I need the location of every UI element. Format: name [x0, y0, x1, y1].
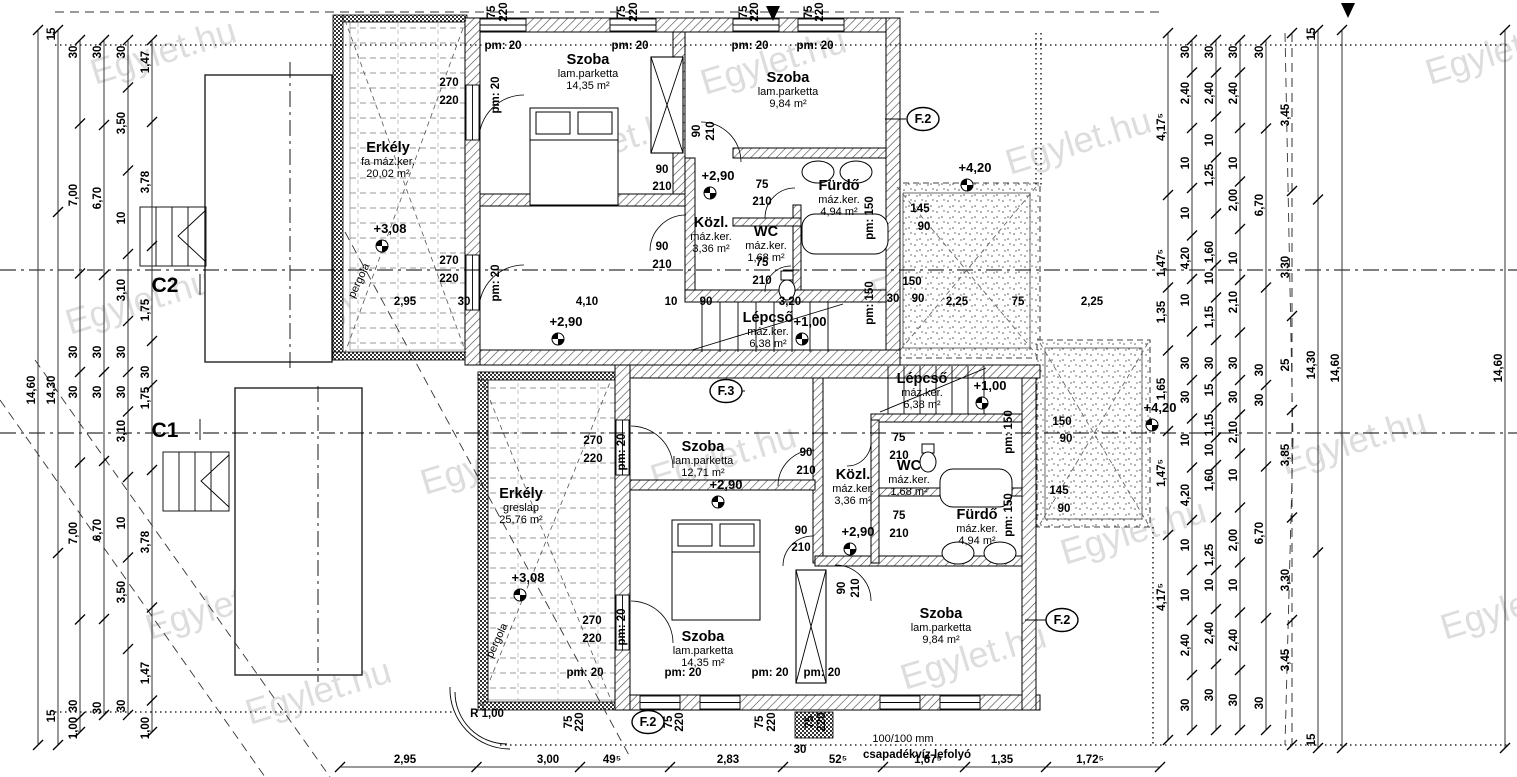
dim-value: 1,35 [991, 754, 1014, 766]
dim-value: 210 [705, 121, 717, 140]
dim-value: 7,00 [68, 522, 80, 544]
dim-value: 10 [1180, 589, 1192, 602]
node-marker-label: F.3 [718, 384, 735, 398]
wall [1022, 378, 1036, 710]
dim-value: 10 [1228, 579, 1240, 592]
dim-value: 75 [804, 715, 816, 728]
level-value: +3,08 [374, 221, 407, 236]
dim-value: 10 [116, 212, 128, 225]
furniture [678, 524, 712, 546]
level-value: +2,90 [550, 314, 583, 329]
dim-value: 30 [1180, 699, 1192, 712]
dim-value: 6,70 [92, 519, 104, 541]
dim-value: 75 [893, 510, 906, 522]
dim-value: 220 [498, 2, 510, 21]
dim-value: 15 [1204, 383, 1216, 396]
room-name: Szoba [767, 70, 811, 86]
node-marker-label: F.2 [1054, 613, 1071, 627]
door-swing [631, 601, 673, 643]
dim-value: 30 [1254, 46, 1266, 59]
dim-value: 3,50 [116, 581, 128, 603]
dim-value: 4,17⁵ [1156, 113, 1168, 141]
dim-value: 1,72⁵ [1076, 754, 1104, 766]
node-marker-label: F.2 [915, 112, 932, 126]
dim-value: 52⁵ [829, 754, 847, 766]
dim-value: 1,00 [68, 717, 80, 739]
dwall [478, 372, 488, 710]
dim-value: 220 [582, 633, 601, 645]
dim-value: 30 [1228, 357, 1240, 370]
floor-plan-page: Egylet.huEgylet.huEgylet.huEgylet.huEgyl… [0, 0, 1517, 777]
dim-value: 2,95 [394, 754, 417, 766]
room-area: 14,35 m² [681, 657, 725, 669]
dim-value: 90 [1058, 503, 1071, 515]
dim-value: 14,60 [1493, 354, 1505, 383]
dim-value: 15 [46, 27, 58, 40]
dim-value: 49⁵ [603, 754, 621, 766]
dim-value: 75 [754, 715, 766, 728]
dim-value: 75 [1012, 296, 1025, 308]
room-name: Erkély [499, 486, 543, 502]
level-value: +4,20 [1144, 400, 1177, 415]
dim-value: 10 [1180, 207, 1192, 220]
dim-value: pm: 20 [490, 76, 502, 113]
arrow-marker [1341, 3, 1355, 18]
level-value: +2,90 [842, 524, 875, 539]
dwall [333, 15, 343, 360]
dim-value: 15 [1306, 27, 1318, 40]
watermark: Egylet.hu [1420, 10, 1517, 93]
dim-value: 2,95 [394, 296, 417, 308]
room-area: 4,94 m² [958, 535, 996, 547]
dim-value: 90 [691, 125, 703, 138]
dim-value: 75 [486, 5, 498, 18]
room-finish: lam.parketta [673, 455, 734, 467]
room-area: 6,38 m² [903, 399, 941, 411]
room-area: 9,84 m² [769, 98, 807, 110]
dim-value: 30 [68, 46, 80, 59]
dim-value: 30 [116, 46, 128, 59]
dim-value: 10 [1204, 134, 1216, 147]
room-area: 20,02 m² [366, 168, 410, 180]
dim-value: 210 [889, 528, 908, 540]
dim-value: 3,78 [140, 170, 152, 193]
dim-value: 30 [92, 346, 104, 359]
dim-value: 10 [1228, 157, 1240, 170]
room-name: Közl. [836, 467, 871, 483]
dim-value: 220 [749, 2, 761, 21]
dim-value: 30 [1180, 46, 1192, 59]
dim-value: 4,17⁵ [1156, 583, 1168, 611]
dim-value: 3,20 [779, 296, 801, 308]
dim-value: 90 [836, 582, 848, 595]
dim-value: 2,40 [1228, 82, 1240, 104]
dim-value: 220 [766, 712, 778, 731]
dim-value: 30 [1228, 391, 1240, 404]
room-finish: lam.parketta [673, 645, 734, 657]
dim-value: pm: 150 [1003, 410, 1015, 453]
dim-value: 10 [1204, 272, 1216, 285]
dim-value: 1,35 [1156, 300, 1168, 323]
section-marker: C2 [152, 274, 179, 297]
furniture [781, 271, 793, 280]
dim-value: 220 [816, 712, 828, 731]
dim-value: 3,10 [116, 420, 128, 442]
dwall [478, 372, 615, 380]
room-area: 25,76 m² [499, 514, 543, 526]
level-value: +2,90 [710, 477, 743, 492]
section-marker: C1 [152, 419, 179, 442]
furniture [578, 112, 612, 134]
level-value: +3,08 [512, 570, 545, 585]
dim-value: 30 [1254, 394, 1266, 407]
dim-value: pm: 20 [484, 40, 521, 52]
watermark: Egylet.hu [1000, 100, 1156, 183]
dim-value: 3,85 [1280, 443, 1292, 466]
dim-value: 90 [1060, 433, 1073, 445]
dim-value: 2,00 [1228, 189, 1240, 211]
dim-value: 10 [1228, 252, 1240, 265]
dim-value: 4,20 [1180, 247, 1192, 269]
dwall [343, 15, 467, 22]
room-name: Szoba [920, 606, 964, 622]
dim-value: 2,25 [946, 296, 969, 308]
room-area: 3,36 m² [834, 495, 872, 507]
dim-value: 2,25 [1081, 296, 1104, 308]
dim-value: 30 [1204, 46, 1216, 59]
dim-value: 2,00 [1228, 529, 1240, 551]
wall [465, 18, 480, 365]
dim-value: 3,78 [140, 530, 152, 553]
dim-value: 90 [912, 293, 925, 305]
room-area: 4,94 m² [820, 206, 858, 218]
room-finish: lam.parketta [758, 86, 819, 98]
neighbor-building [235, 388, 362, 675]
room-name: Erkély [366, 140, 410, 156]
room-finish: lam.parketta [558, 68, 619, 80]
dim-value: 90 [795, 525, 808, 537]
dim-value: 6,70 [1254, 194, 1266, 216]
dim-value: 1,15 [1204, 413, 1216, 436]
dim-value: 220 [814, 2, 826, 21]
room-finish: máz.ker. [747, 326, 789, 338]
door-swing [847, 442, 871, 466]
dim-value: 145 [1049, 485, 1069, 497]
neighbor-building [205, 75, 332, 362]
dim-value: 1,75 [140, 298, 152, 321]
room-finish: máz.ker. [818, 194, 860, 206]
dim-value: 2,40 [1204, 622, 1216, 644]
dim-value: pm: 150 [1003, 493, 1015, 536]
dim-value: pm: 20 [803, 667, 840, 679]
dim-value: 1,47⁵ [1156, 249, 1168, 277]
dim-value: 90 [918, 221, 931, 233]
room-name: Fürdő [956, 507, 997, 523]
dim-value: 2,40 [1180, 82, 1192, 104]
watermark: Egylet.hu [1275, 400, 1431, 483]
thin [163, 452, 229, 511]
plan-path [201, 455, 229, 507]
dim-value: 15 [46, 709, 58, 722]
dim-value: 1,65 [1156, 377, 1168, 400]
dim-value: 30 [1180, 357, 1192, 370]
dim-value: pm: 20 [490, 264, 502, 301]
dim-value: 75 [616, 5, 628, 18]
dim-value: 30 [116, 346, 128, 359]
dim-value: 270 [582, 615, 601, 627]
dim-value: 220 [574, 712, 586, 731]
dwall [333, 352, 467, 360]
dim-value: 10 [1204, 579, 1216, 592]
room-finish: máz.ker. [956, 523, 998, 535]
dim-value: 3,30 [1280, 569, 1292, 591]
watermark: Egylet.hu [60, 260, 216, 343]
room-name: WC [754, 224, 779, 240]
dim-value: 1,47 [140, 662, 152, 684]
dim-value: 3,00 [537, 754, 559, 766]
dim-value: 10 [1180, 539, 1192, 552]
dim-value: 14,30 [1306, 351, 1318, 380]
dim-value: 14,60 [1330, 354, 1342, 383]
dim-value: 14,60 [26, 376, 38, 405]
floor-plan-canvas: Egylet.huEgylet.huEgylet.huEgylet.huEgyl… [0, 0, 1517, 777]
dim-value: 30 [1228, 694, 1240, 707]
dim-value: 30 [887, 293, 900, 305]
dim-value: pm: 150 [864, 196, 876, 239]
dim-value: 30 [68, 386, 80, 399]
dim-value: 2,40 [1228, 629, 1240, 651]
dim-value: 210 [850, 578, 862, 597]
dim-value: 6,70 [1254, 522, 1266, 544]
room-finish: greslap [503, 502, 539, 514]
room-area: 1,68 m² [747, 252, 785, 264]
dim-value: 10 [1228, 469, 1240, 482]
dim-value: pm: 20 [751, 667, 788, 679]
dim-value: 220 [628, 2, 640, 21]
room-name: Lépcső [743, 310, 794, 326]
dim-value: 2,40 [1180, 634, 1192, 656]
dim-value: 7,00 [68, 184, 80, 206]
dim-value: 4,20 [1180, 484, 1192, 506]
dim-value: 1,60 [1204, 241, 1216, 263]
dim-value: pm: 20 [616, 433, 628, 470]
room-finish: fa máz.ker. [361, 156, 415, 168]
dim-value: 3,50 [116, 112, 128, 134]
dim-value: 75 [893, 432, 906, 444]
dim-value: 1,47 [140, 51, 152, 73]
dim-value: 3,10 [116, 279, 128, 301]
plan-path [178, 210, 206, 262]
level-value: +4,20 [959, 160, 992, 175]
dim-value: pm: 150 [864, 281, 876, 324]
wall [733, 148, 886, 158]
dim-value: 1,25 [1204, 163, 1216, 186]
wall [465, 350, 900, 365]
dim-value: 30 [116, 700, 128, 713]
room-finish: máz.ker. [690, 231, 732, 243]
dim-value: 2,10 [1228, 291, 1240, 313]
dim-value: 30 [116, 386, 128, 399]
balcony-grid [488, 380, 615, 700]
dim-value: 6,70 [92, 187, 104, 209]
room-name: Szoba [682, 629, 726, 645]
dim-value: pm: 20 [796, 40, 833, 52]
node-marker-label: F.2 [640, 715, 657, 729]
dim-value: 145 [910, 203, 930, 215]
dim-value: 10 [1180, 157, 1192, 170]
room-name: Szoba [682, 439, 726, 455]
dim-value: 270 [439, 255, 458, 267]
dim-value: 3,45 [1280, 103, 1292, 126]
dim-value: 1,25 [1204, 543, 1216, 566]
dim-value: pm: 20 [611, 40, 648, 52]
thin [140, 207, 206, 266]
dim-value: 210 [652, 259, 671, 271]
dim-value: 10 [1180, 294, 1192, 307]
sanitary-fixture [920, 452, 936, 472]
dim-value: 2,10 [1228, 421, 1240, 443]
dim-value: 3,30 [1280, 256, 1292, 278]
dim-value: 150 [1052, 416, 1071, 428]
room-area: 6,38 m² [749, 338, 787, 350]
annotation: 100/100 mm [872, 733, 933, 745]
dim-value: 14,30 [46, 376, 58, 405]
room-finish: máz.ker. [901, 387, 943, 399]
wall [615, 365, 1040, 378]
room-area: 14,35 m² [566, 80, 610, 92]
dim-value: 30 [1204, 689, 1216, 702]
dim-value: pm: 20 [566, 667, 603, 679]
dim-value: 30 [1204, 357, 1216, 370]
dim-value: 15 [1306, 733, 1318, 746]
annotation: R 1,00 [470, 708, 504, 720]
dim-value: 30 [458, 296, 471, 308]
dim-value: 30 [1254, 697, 1266, 710]
dim-value: 90 [800, 447, 813, 459]
level-value: +1,00 [974, 378, 1007, 393]
dim-value: 1,15 [1204, 305, 1216, 328]
dim-value: 270 [439, 77, 458, 89]
dim-value: 30 [1228, 46, 1240, 59]
dim-value: 1,47⁵ [1156, 459, 1168, 487]
dim-value: 30 [68, 700, 80, 713]
dim-value: 30 [92, 46, 104, 59]
dim-value: 90 [656, 164, 669, 176]
bathtub [940, 469, 1012, 507]
dim-value: 270 [583, 435, 602, 447]
room-area: 3,36 m² [692, 243, 730, 255]
dim-value: 30 [68, 346, 80, 359]
wall [871, 414, 1022, 422]
annotation: csapadékvíz lefolyó [863, 749, 971, 761]
dim-value: 2,83 [717, 754, 739, 766]
level-value: +1,00 [794, 314, 827, 329]
dim-value: 150 [902, 276, 921, 288]
dim-value: 210 [752, 196, 771, 208]
dim-value: 10 [1204, 444, 1216, 457]
dim-value: 220 [674, 712, 686, 731]
room-name: Fürdő [818, 178, 859, 194]
dim-value: 10 [1180, 434, 1192, 447]
dim-value: 4,10 [576, 296, 598, 308]
dim-value: 25 [1280, 358, 1292, 371]
room-name: Közl. [694, 215, 729, 231]
dim-value: 220 [583, 453, 602, 465]
dim-value: pm: 20 [731, 40, 768, 52]
dim-value: 1,60 [1204, 469, 1216, 491]
dim-value: 30 [1254, 364, 1266, 377]
dim-value: 220 [439, 95, 458, 107]
room-name: Lépcső [897, 371, 948, 387]
dim-value: 210 [752, 275, 771, 287]
dim-value: pm: 20 [616, 608, 628, 645]
room-finish: máz.ker. [832, 483, 874, 495]
room-area: 9,84 m² [922, 634, 960, 646]
dim-value: 210 [791, 542, 810, 554]
dim-value: 3,45 [1280, 648, 1292, 671]
dim-value: 30 [140, 366, 152, 379]
dim-value: 75 [756, 179, 769, 191]
level-value: +2,90 [702, 168, 735, 183]
furniture [720, 524, 754, 546]
dim-value: 1,75 [140, 386, 152, 409]
dim-value: 30 [1180, 391, 1192, 404]
dim-value: 90 [656, 241, 669, 253]
room-finish: máz.ker. [745, 240, 787, 252]
room-finish: máz.ker. [888, 474, 930, 486]
dim-value: 210 [652, 181, 671, 193]
wall [615, 365, 630, 710]
dim-value: 30 [92, 702, 104, 715]
dim-value: 2,40 [1204, 82, 1216, 104]
room-name: WC [897, 458, 922, 474]
furniture [536, 112, 570, 134]
dim-value: 210 [796, 465, 815, 477]
dim-value: 220 [439, 273, 458, 285]
room-name: Szoba [567, 52, 611, 68]
dim-value: 90 [700, 296, 713, 308]
dim-value: 30 [92, 386, 104, 399]
dim-value: 30 [794, 744, 807, 756]
dim-value: 10 [116, 517, 128, 530]
room-area: 1,68 m² [890, 486, 928, 498]
room-finish: lam.parketta [911, 622, 972, 634]
dim-value: 1,00 [140, 717, 152, 739]
dim-value: 10 [665, 296, 678, 308]
